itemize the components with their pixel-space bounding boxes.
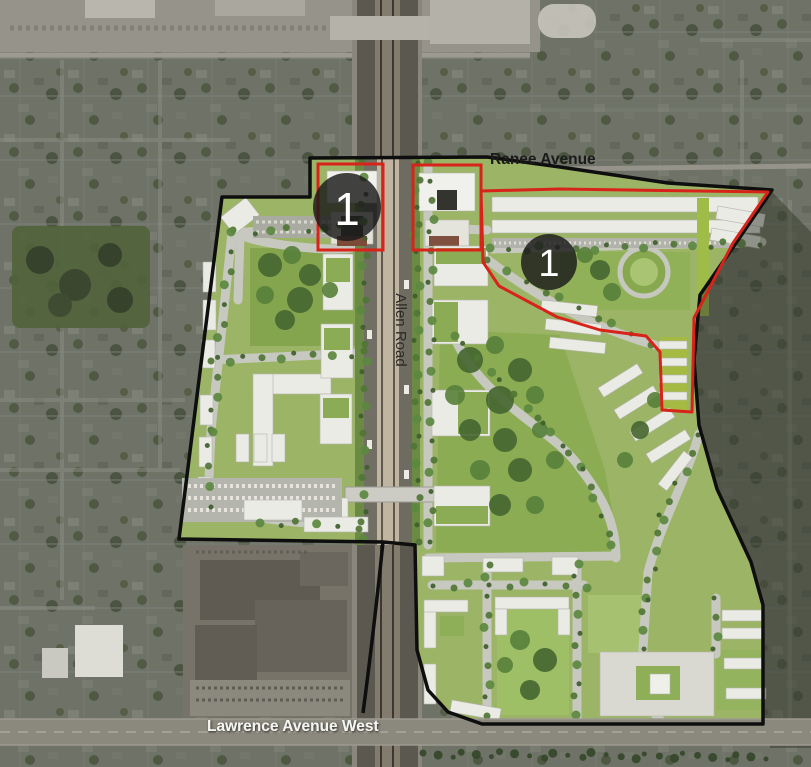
map-canvas: 1 1 Ranee Avenue Allen Road Lawrence Ave…	[0, 0, 811, 767]
phase-marker-west: 1	[313, 173, 381, 241]
phase-marker-east-label: 1	[538, 243, 559, 285]
phase-marker-east: 1	[521, 234, 577, 290]
ranee-avenue-label: Ranee Avenue	[490, 151, 596, 168]
mall-block	[183, 545, 365, 717]
allen-road-label: Allen Road	[392, 293, 409, 366]
top-plaza	[0, 0, 596, 55]
aerial-park-west	[12, 226, 150, 328]
phase-marker-west-label: 1	[334, 183, 360, 235]
lawrence-avenue-west-label: Lawrence Avenue West	[207, 718, 379, 735]
north-overpass	[330, 16, 430, 40]
